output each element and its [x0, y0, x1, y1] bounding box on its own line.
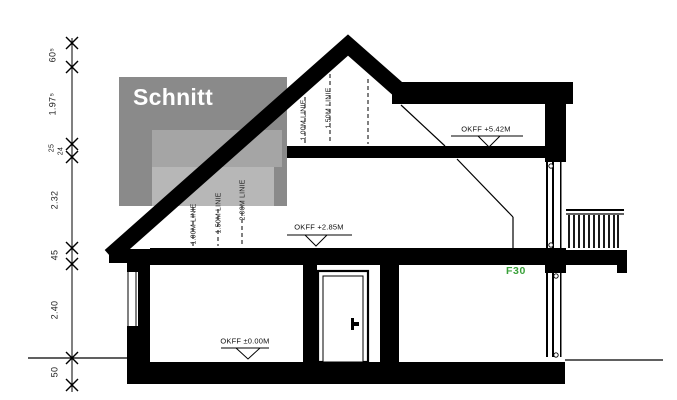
- height-line-label-upper-100: 1.00M LINIE: [191, 203, 198, 244]
- attic-floor-slab: [250, 146, 566, 158]
- left-wall: [127, 249, 150, 384]
- level-label-285: OKFF +2.85M: [294, 223, 344, 231]
- level-label-000: OKFF ±0.00M: [220, 337, 269, 345]
- flat-roof: [392, 82, 573, 104]
- door: [318, 271, 368, 362]
- height-line-label-upper-200: 2.00M LINIE: [240, 179, 247, 220]
- dim-attic-slab: 25: [49, 144, 56, 152]
- level-label-542: OKFF +5.42M: [461, 125, 511, 133]
- height-line-label-attic-100: 1.00M LINIE: [301, 99, 308, 140]
- section-title: Schnitt: [133, 84, 213, 111]
- door-handle-icon: [351, 318, 354, 330]
- height-line-label-attic-150: 1.50M LINIE: [326, 87, 333, 128]
- dim-roof-height: 1.97⁵: [49, 93, 58, 116]
- balcony: [566, 210, 627, 273]
- upper-floor-slab: [150, 248, 566, 265]
- ground-floor-slab: [127, 362, 565, 384]
- dim-upper-room: 2.32: [51, 191, 60, 210]
- dimension-line: [66, 37, 78, 392]
- dim-ridge: 60⁵: [49, 48, 58, 63]
- dim-base-slab: 50: [51, 367, 60, 378]
- dim-ground-room: 2.40: [51, 301, 60, 320]
- dim-attic-slab-2: 24: [58, 147, 65, 155]
- right-wall: [545, 104, 566, 357]
- section-linework: [0, 0, 677, 400]
- height-line-label-upper-150: 1.50M LINIE: [216, 192, 223, 233]
- dim-floor-package: 45: [51, 250, 60, 261]
- section-drawing: Schnitt 60⁵ 1.97⁵ 25 24 2.32 45 2.40 50 …: [0, 0, 677, 400]
- fire-rating-label: F30: [506, 266, 526, 277]
- balcony-railing: [566, 210, 624, 248]
